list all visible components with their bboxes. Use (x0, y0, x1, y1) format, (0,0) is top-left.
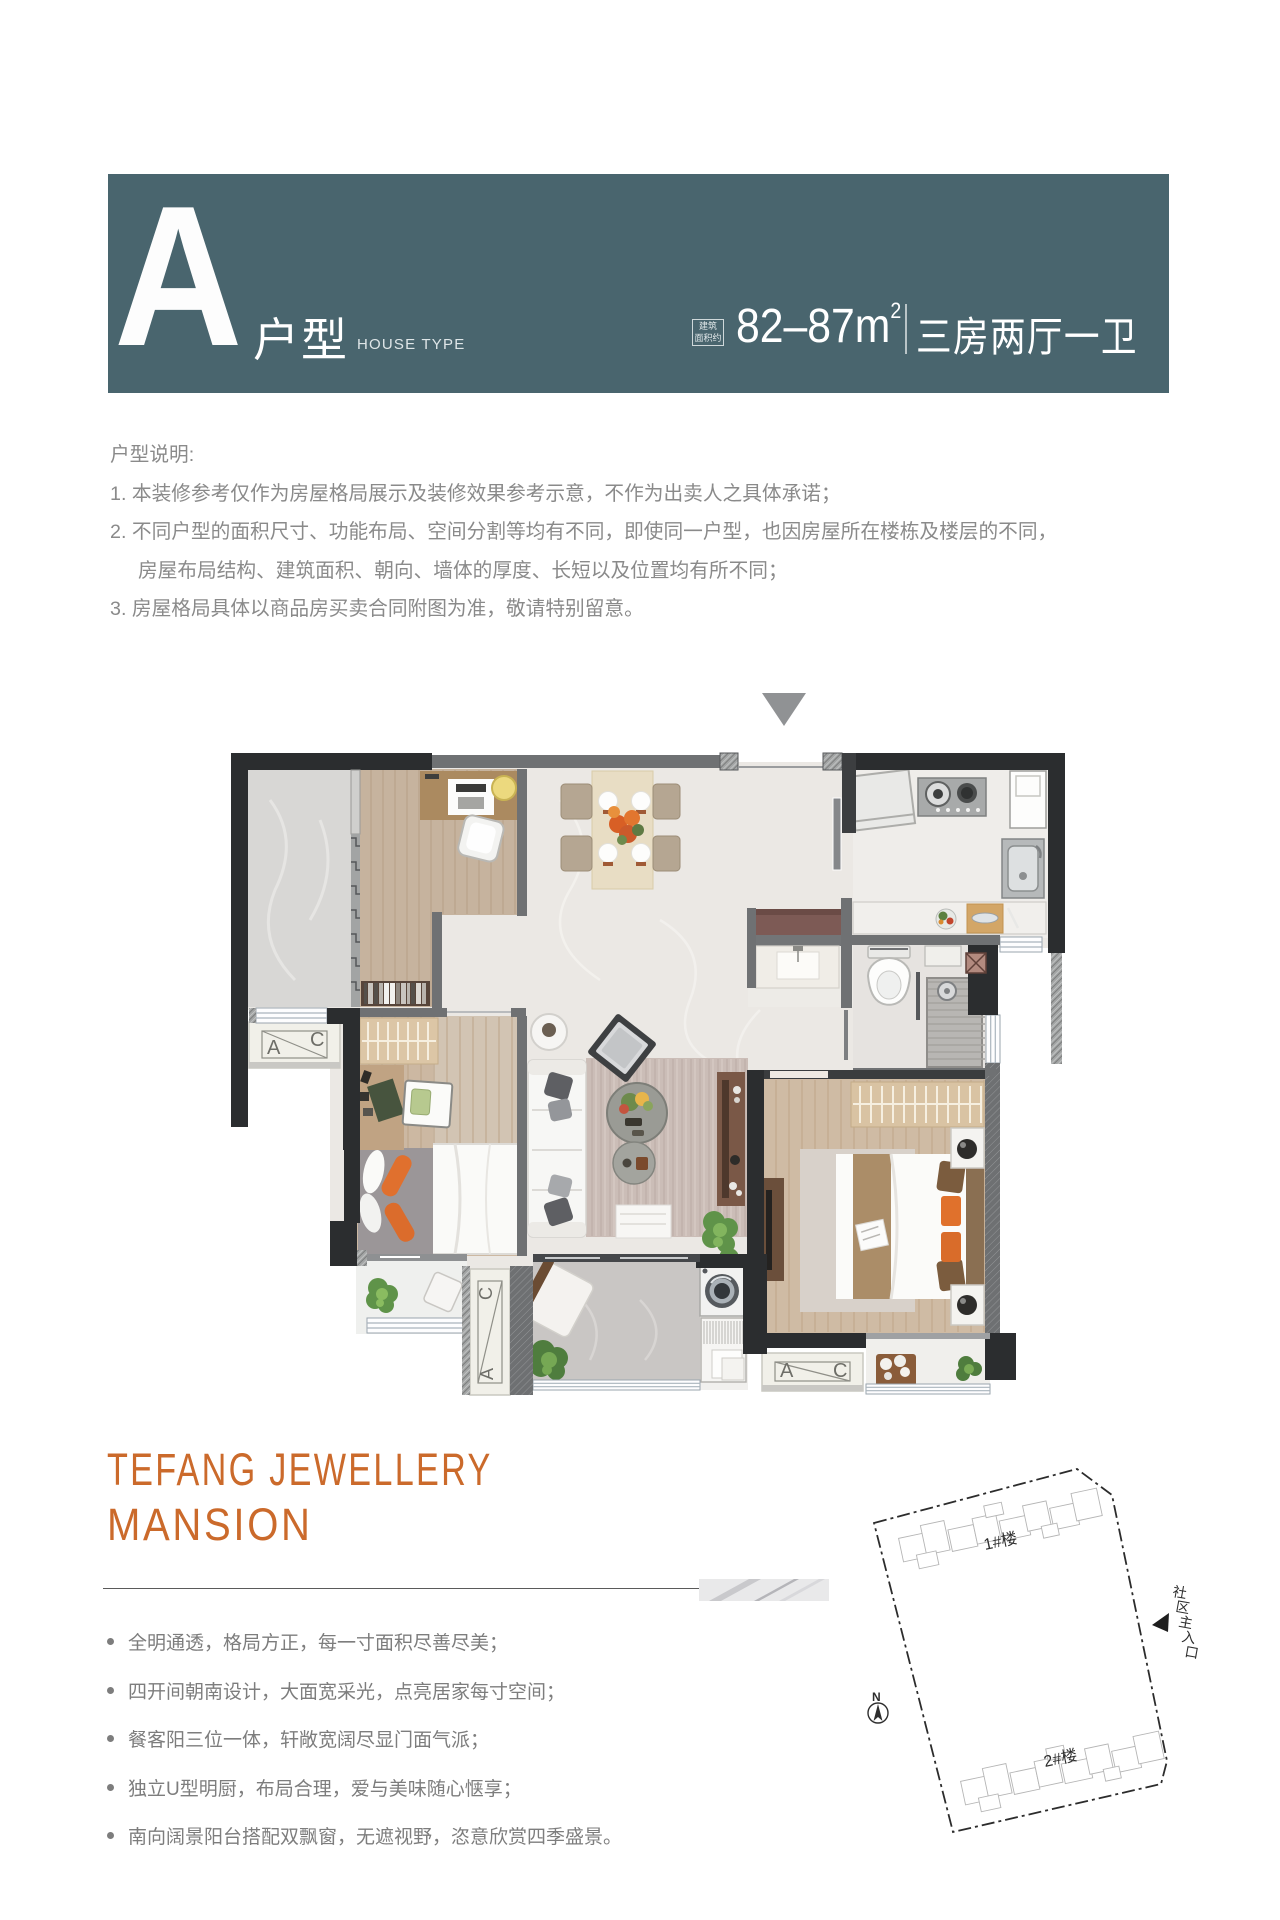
svg-text:A: A (477, 1368, 497, 1380)
svg-text:N: N (872, 1690, 881, 1704)
svg-text:C: C (833, 1360, 847, 1382)
svg-text:A: A (780, 1360, 794, 1382)
svg-text:C: C (476, 1287, 496, 1300)
svg-text:A: A (267, 1037, 281, 1059)
svg-text:C: C (310, 1029, 324, 1051)
svg-text:口: 口 (1183, 1643, 1200, 1661)
